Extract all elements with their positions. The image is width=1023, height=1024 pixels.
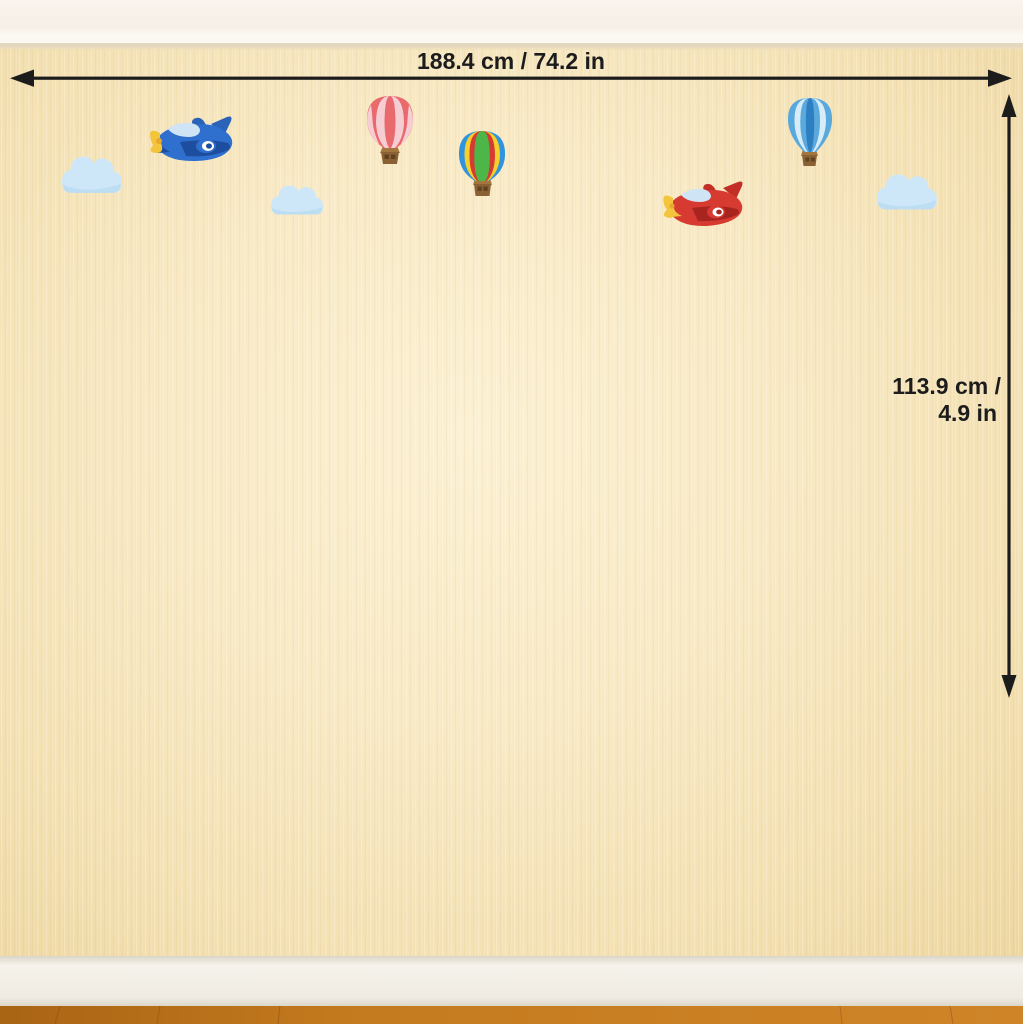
svg-text:188.4 cm / 74.2 in: 188.4 cm / 74.2 in: [417, 48, 605, 74]
svg-text:113.9 cm /: 113.9 cm /: [892, 373, 1001, 399]
svg-text:4.9 in: 4.9 in: [938, 400, 997, 426]
